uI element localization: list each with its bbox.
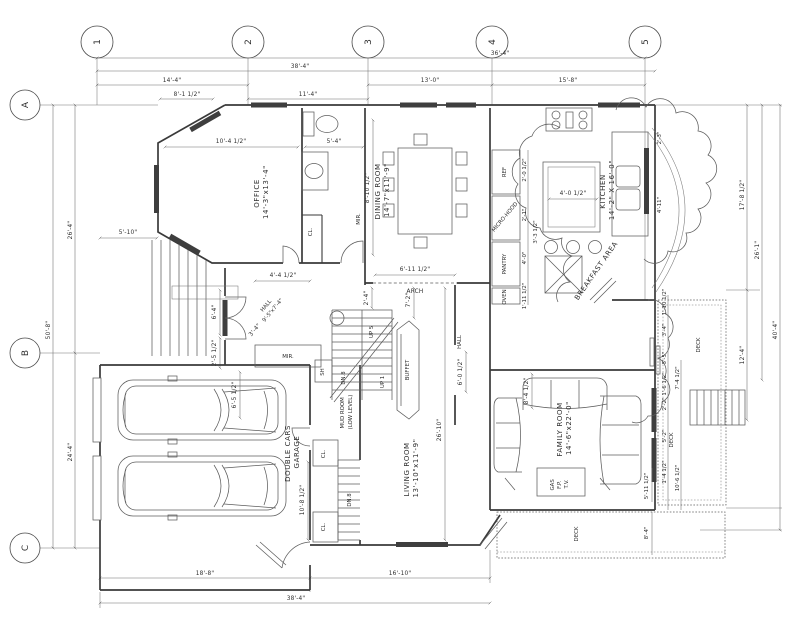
dim-fam-r2: 2'-2" (662, 398, 668, 411)
window-office-top (251, 103, 287, 108)
dining-table (398, 148, 452, 234)
living-label: LIVING ROOM 13'-10"x11'-9" (403, 438, 420, 497)
dim-left-b-c: 24'-4" (68, 443, 74, 462)
dim-kcab-5: 3'-3 1/2" (533, 220, 539, 243)
window-office-left (154, 165, 159, 213)
grid-label-2: 2 (244, 39, 254, 45)
buffet-label: BUFFET (405, 359, 411, 380)
window-kitchen-top (598, 103, 640, 108)
grid-label-C: C (21, 545, 31, 551)
deck-right-label: DECK (696, 337, 702, 352)
pantry-label: PANTRY (502, 253, 508, 274)
grid-label-A: A (21, 101, 31, 108)
dishwasher-box (545, 256, 582, 293)
grid-label-4: 4 (488, 39, 498, 45)
family-label: FAMILY ROOM 14'-6"x22'-0" (556, 399, 573, 456)
grid-label-3: 3 (364, 39, 374, 45)
window-office-bay-1 (189, 111, 221, 132)
dn8b-label: DN.8 (347, 493, 353, 507)
dim-top-2-3: 11'-4" (299, 92, 318, 98)
hall2-label: HALL (457, 335, 463, 349)
toilet-bowl (316, 116, 338, 133)
car-2 (118, 452, 286, 520)
car-1 (118, 376, 286, 444)
dim-deck-w3: 5'-5" (662, 352, 668, 365)
dimensions-top: 36'-4" 38'-4" 14'-4" 13'-0" 15'-8" 8'-1 … (97, 51, 655, 255)
cl3-label: CL. (321, 522, 327, 531)
cl1-label: CL. (308, 227, 314, 236)
dim-top-1-2: 14'-4" (163, 78, 182, 84)
dim-entry-side: 2'-5 1/2" (212, 340, 218, 367)
dim-right-deck: 12'-4" (740, 346, 746, 365)
dim-top-overall-b: 38'-4" (291, 64, 310, 70)
sofa-left (494, 398, 522, 472)
kitchen-island (543, 162, 600, 232)
counter-edge (644, 148, 649, 214)
kitchen-counter (612, 132, 648, 236)
dim-fam-r3: 5'-2" (662, 430, 668, 443)
window-dining-2 (446, 103, 476, 108)
dim-fam-r4: 1'-4 1/2" (662, 460, 668, 483)
deck-bottom (497, 512, 725, 558)
dim-top-3-4: 13'-0" (421, 78, 440, 84)
dim-deck-w1: 1'-10 1/2" (662, 289, 668, 316)
micro-label: MICRO-HOOD (491, 201, 519, 233)
dim-right-mid: 26'-1" (755, 241, 761, 260)
door-family-slider-2 (656, 346, 660, 374)
dn8-label: DN.8 (341, 371, 347, 385)
dim-fam-r1: 7'-4 1/2" (675, 366, 681, 389)
grid-label-B: B (21, 350, 31, 356)
arch-opening: 6'-11 1/2" ARCH (373, 267, 457, 295)
dim-entry-window: 6'-4" (212, 305, 218, 320)
dim-kcab-1: 2'-0 1/2" (522, 158, 528, 181)
floor-plan-sheet: 1 2 3 4 5 A B C 36'-4" 38'-4" 14'-4" 13'… (0, 0, 800, 640)
dim-left-overall: 50'-8" (46, 321, 52, 340)
mir2-label: MIR. (356, 213, 362, 225)
dim-left-a-b: 26'-4" (68, 221, 74, 240)
dim-mud-stair: 10'-8 1/2" (300, 485, 306, 516)
door-garage-side (256, 542, 310, 568)
vanity-counter (302, 152, 328, 190)
stool-2 (567, 241, 580, 254)
dim-garage-clear: 6'-5 1/2" (232, 382, 238, 409)
dim-top-4-5: 15'-8" (559, 78, 578, 84)
deck-right2-label: DECK (669, 432, 675, 447)
office-label: OFFICE 14'-3"x13'-4" (253, 165, 270, 219)
dim-fam-r5: 10'-6 1/2" (675, 465, 681, 492)
dim-office-bay: 8'-1 1/2" (174, 92, 201, 98)
dining-label: DINING ROOM 14'-7"x11'-9" (374, 161, 391, 220)
dim-deck-b1: 5'-11 1/2" (644, 473, 650, 500)
dim-arch-width: 6'-11 1/2" (400, 267, 431, 273)
dim-bottom-garage: 18'-8" (196, 571, 215, 577)
mud-label: MUD ROOM (LOW LEVEL) (340, 395, 354, 430)
door-living-deck (480, 518, 507, 549)
breakfast-label: BREAKFAST AREA (573, 240, 620, 302)
up5-label: UP 5 (369, 326, 375, 338)
cloud-breakfast (616, 98, 717, 263)
dimensions-left: 50'-8" 26'-4" 24'-4" 5'-10" 6'-4" 2'-5 1… (46, 105, 220, 548)
kitchen-label: KITCHEN 14'-2" X 16'-0" (599, 160, 616, 220)
dim-top-overall-a: 36'-4" (491, 51, 510, 57)
dim-kcab-2: 2'-1" (522, 209, 528, 222)
window-dining-1 (400, 103, 437, 108)
dim-powder-depth: 8'-10 1/2" (365, 173, 371, 204)
dim-hall-closet: 4'-4 1/2" (270, 273, 297, 279)
dim-right-top: 17'-8 1/2" (740, 180, 746, 211)
up1-label: UP 1 (380, 376, 386, 388)
deck-bottom-label: DECK (574, 526, 580, 541)
oven-label: OVEN (502, 289, 508, 304)
stairs-main (330, 310, 398, 402)
dining-set (383, 134, 467, 248)
garage-cars (93, 376, 286, 520)
dim-deck-b2: 8'-4" (644, 527, 650, 540)
ref-label: REF (502, 167, 508, 177)
powder-sink (305, 164, 323, 179)
dim-bottom-overall: 38'-4" (287, 596, 306, 602)
dim-hall-width: 6'-0 1/2" (458, 359, 464, 386)
dim-island: 4'-0 1/2" (560, 191, 587, 197)
window-family-1 (652, 388, 657, 432)
mir1-label: MIR. (282, 354, 294, 360)
fireplace-label: GAS F.P. T.V. (550, 477, 570, 490)
dim-kcab-3: 4'-0" (522, 252, 528, 265)
floor-plan-drawing: 1 2 3 4 5 A B C 36'-4" 38'-4" 14'-4" 13'… (0, 0, 800, 640)
dim-buffet-hall: 7'-2" (406, 293, 412, 308)
sh-label: SH (320, 368, 326, 375)
porch-steps (152, 240, 238, 356)
dim-living-depth: 26'-10" (437, 419, 443, 442)
stool-1 (545, 241, 558, 254)
deck-steps-right (690, 390, 745, 425)
dining-chairs (383, 134, 467, 248)
stool-3 (589, 241, 602, 254)
revision-clouds (512, 98, 716, 423)
sofa-right (600, 396, 641, 484)
door-entry-double (225, 297, 246, 339)
door-office (283, 246, 299, 263)
cl2-label: CL. (321, 449, 327, 458)
grid-label-1: 1 (93, 39, 103, 45)
dim-stair-width: 2'-4" (364, 291, 370, 306)
garage-door-2 (93, 456, 101, 520)
window-living-bottom (396, 542, 448, 547)
dim-office-width: 10'-4 1/2" (216, 139, 247, 145)
dim-deck-w2: 3'-4" (662, 324, 668, 337)
dim-right-overall: 40'-4" (773, 321, 779, 340)
grid-label-5: 5 (641, 39, 651, 45)
dim-deck-w4: 1'-6 1/2" (662, 372, 668, 395)
dim-hall-diag: 3'-4" (248, 323, 262, 338)
sink-basin-2 (616, 189, 640, 210)
dim-bottom-living: 16'-10" (389, 571, 412, 577)
dim-kcab-4: 1'-11 1/2" (522, 283, 528, 310)
dim-fam-inner: 8'-4 1/2" (524, 378, 530, 405)
dim-kit-r1: 2'-3" (657, 132, 663, 145)
garage-door-1 (93, 378, 101, 442)
dimensions-bottom: 18'-8" 16'-10" 38'-4" (100, 550, 490, 608)
toilet-tank (303, 112, 314, 136)
sink-basin-1 (616, 166, 640, 187)
dim-porch-width: 5'-10" (119, 230, 138, 236)
dim-kit-r2: 4'-11" (657, 197, 663, 213)
door-family-slider-1 (650, 338, 654, 366)
hall-label: HALL 9'-5"x7'-4" (255, 292, 284, 323)
dim-powder-width: 5'-4" (327, 139, 342, 145)
door-powder (341, 241, 363, 263)
window-office-bay-2 (169, 234, 201, 255)
doors (225, 241, 660, 568)
